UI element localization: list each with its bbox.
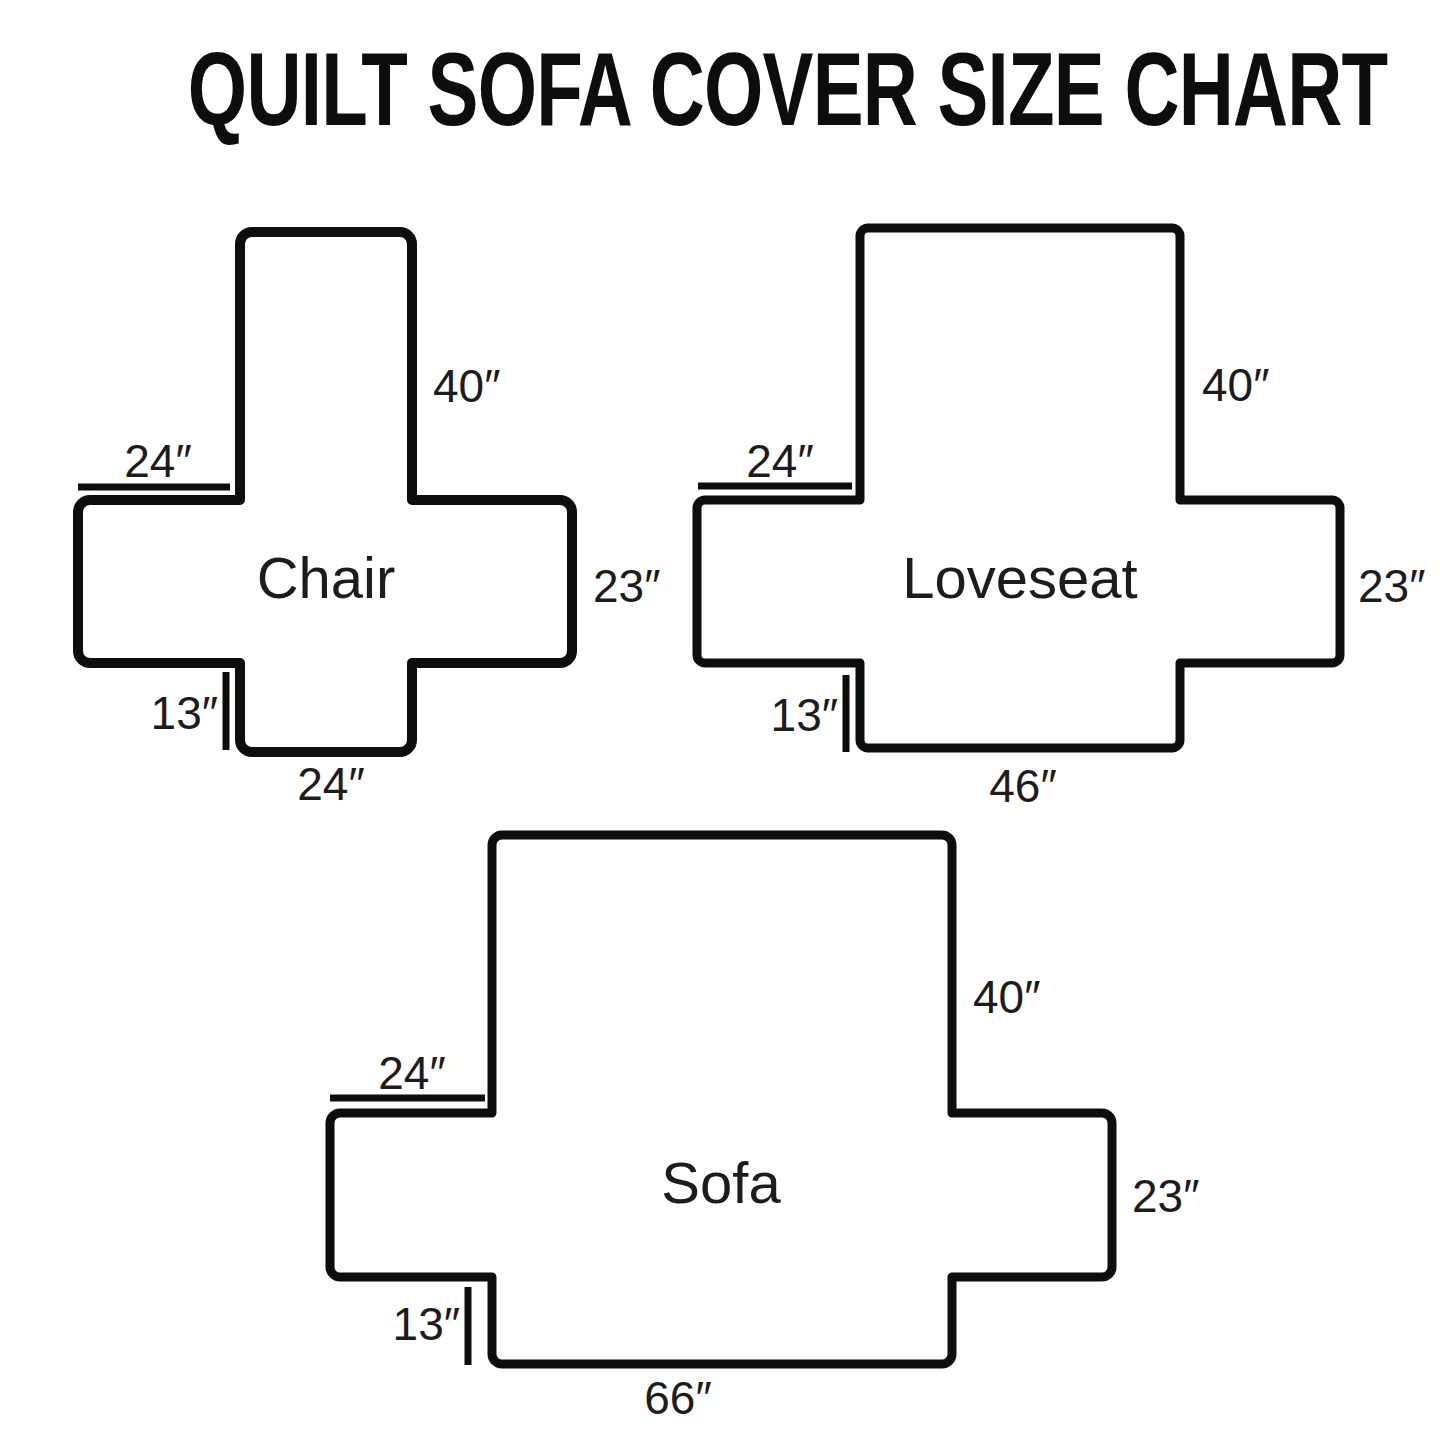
chair-arm-side-height-label: 23″	[593, 560, 660, 612]
sofa-diagram: 40″ 24″ Sofa 23″ 13″ 66″	[330, 835, 1199, 1424]
sofa-name-label: Sofa	[661, 1150, 781, 1215]
chair-cover-outline	[78, 232, 572, 752]
quilt-sofa-cover-size-chart: QUILT SOFA COVER SIZE CHART 40″ 24″ Chai…	[0, 0, 1445, 1435]
loveseat-diagram: 40″ 24″ Loveseat 23″ 13″ 46″	[697, 228, 1425, 812]
chair-diagram: 40″ 24″ Chair 23″ 13″ 24″	[78, 232, 660, 810]
chair-name-label: Chair	[257, 545, 396, 610]
sofa-front-width-label: 66″	[644, 1372, 711, 1424]
chair-front-drop-label: 13″	[151, 687, 218, 739]
size-diagrams-canvas: 40″ 24″ Chair 23″ 13″ 24″ 40″ 24″ Lovese…	[0, 0, 1445, 1435]
chair-back-height-label: 40″	[433, 360, 500, 412]
sofa-back-height-label: 40″	[973, 971, 1040, 1023]
loveseat-arm-side-height-label: 23″	[1358, 560, 1425, 612]
loveseat-arm-top-width-label: 24″	[746, 435, 813, 487]
sofa-arm-side-height-label: 23″	[1132, 1170, 1199, 1222]
chair-arm-top-width-label: 24″	[124, 435, 191, 487]
loveseat-back-height-label: 40″	[1202, 359, 1269, 411]
sofa-front-drop-label: 13″	[393, 1298, 460, 1350]
sofa-arm-top-width-label: 24″	[378, 1047, 445, 1099]
chair-front-width-label: 24″	[297, 758, 364, 810]
loveseat-front-width-label: 46″	[989, 760, 1056, 812]
loveseat-name-label: Loveseat	[902, 545, 1137, 610]
loveseat-front-drop-label: 13″	[771, 689, 838, 741]
